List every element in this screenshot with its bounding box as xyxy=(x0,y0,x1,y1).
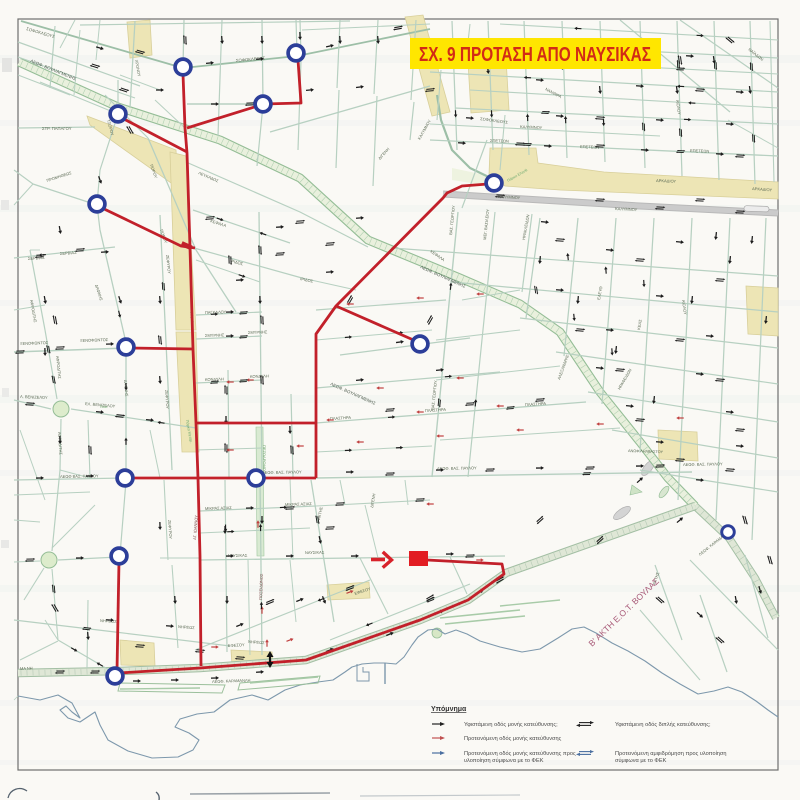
svg-text:ΣΤΡ. ΠΑΠΑΓΟΥ: ΣΤΡ. ΠΑΠΑΓΟΥ xyxy=(42,126,72,131)
svg-text:ΛΕΩΦ. ΒΑΣ. ΠΑΥΛΟΥ: ΛΕΩΦ. ΒΑΣ. ΠΑΥΛΟΥ xyxy=(683,461,723,467)
svg-text:Πλατ.: Πλατ. xyxy=(100,405,108,409)
svg-text:ΚΟΝΔΥΛΗ: ΚΟΝΔΥΛΗ xyxy=(250,373,269,379)
svg-text:ΛΕΩΦ. ΒΑΣ. ΠΑΥΛΟΥ: ΛΕΩΦ. ΒΑΣ. ΠΑΥΛΟΥ xyxy=(262,469,302,475)
svg-text:υλοποίηση σύμφωνα με το ΦΕΚ: υλοποίηση σύμφωνα με το ΦΕΚ xyxy=(464,758,544,764)
svg-text:ΜΙΚΡΑΣ ΑΣΙΑΣ: ΜΙΚΡΑΣ ΑΣΙΑΣ xyxy=(205,505,233,511)
svg-text:ΜΙΚΡΑΣ ΑΣΙΑΣ: ΜΙΚΡΑΣ ΑΣΙΑΣ xyxy=(285,501,313,507)
svg-text:ΑΡΚΑΔΙΟΥ: ΑΡΚΑΔΙΟΥ xyxy=(656,178,677,184)
svg-text:ΞΕΝΟΦΩΝΤΟΣ: ΞΕΝΟΦΩΝΤΟΣ xyxy=(20,340,49,346)
svg-text:ΕΦΕΣΟΥ: ΕΦΕΣΟΥ xyxy=(228,642,245,648)
svg-text:Προτεινόμενη οδός μονής κατεύθ: Προτεινόμενη οδός μονής κατεύθυνσης προς xyxy=(464,750,576,757)
svg-text:ΜΑ ΝΗ: ΜΑ ΝΗ xyxy=(20,666,33,671)
svg-text:ΞΕΝΟΦΩΝΤΟΣ: ΞΕΝΟΦΩΝΤΟΣ xyxy=(80,337,109,343)
svg-text:ΣΧ. 9 ΠΡΟΤΑΣΗ ΑΠΟ ΝΑΥΣΙΚΑΣ: ΣΧ. 9 ΠΡΟΤΑΣΗ ΑΠΟ ΝΑΥΣΙΚΑΣ xyxy=(419,43,651,66)
svg-text:ΣΜΥΡΝΗΣ: ΣΜΥΡΝΗΣ xyxy=(248,329,268,335)
svg-text:ΝΗΡΕΩΣ: ΝΗΡΕΩΣ xyxy=(100,618,117,624)
svg-text:ΝΑΥΣΙΚΑΣ: ΝΑΥΣΙΚΑΣ xyxy=(305,550,325,555)
svg-text:Προτεινόμενη αμφιδρόμηση προς: Προτεινόμενη αμφιδρόμηση προς υλοποίηση xyxy=(615,750,726,757)
svg-text:Υφιστάμενη οδός μονής κατεύθυν: Υφιστάμενη οδός μονής κατεύθυνσης; xyxy=(464,721,558,728)
svg-text:ΣΠΕΤΣΩΝ: ΣΠΕΤΣΩΝ xyxy=(490,138,509,144)
svg-text:Λ. ΒΕΝΙΖΕΛΟΥ: Λ. ΒΕΝΙΖΕΛΟΥ xyxy=(20,394,48,400)
svg-text:Υπόμνημα: Υπόμνημα xyxy=(431,706,467,713)
svg-text:ΠΟΣΕΙΔΩΝΟΣ: ΠΟΣΕΙΔΩΝΟΣ xyxy=(258,573,264,600)
svg-text:Υφιστάμενη οδός διπλής κατεύθυ: Υφιστάμενη οδός διπλής κατεύθυνσης; xyxy=(615,721,711,728)
svg-text:Προτεινόμενη οδός μονής κατεύθ: Προτεινόμενη οδός μονής κατεύθυνσης xyxy=(464,735,562,742)
svg-text:ΣΜΥΡΝΗΣ: ΣΜΥΡΝΗΣ xyxy=(205,332,225,338)
svg-text:σύμφωνα με το ΦΕΚ: σύμφωνα με το ΦΕΚ xyxy=(615,758,667,764)
svg-text:ΕΠΕΤΕΩΝ: ΕΠΕΤΕΩΝ xyxy=(690,148,709,154)
